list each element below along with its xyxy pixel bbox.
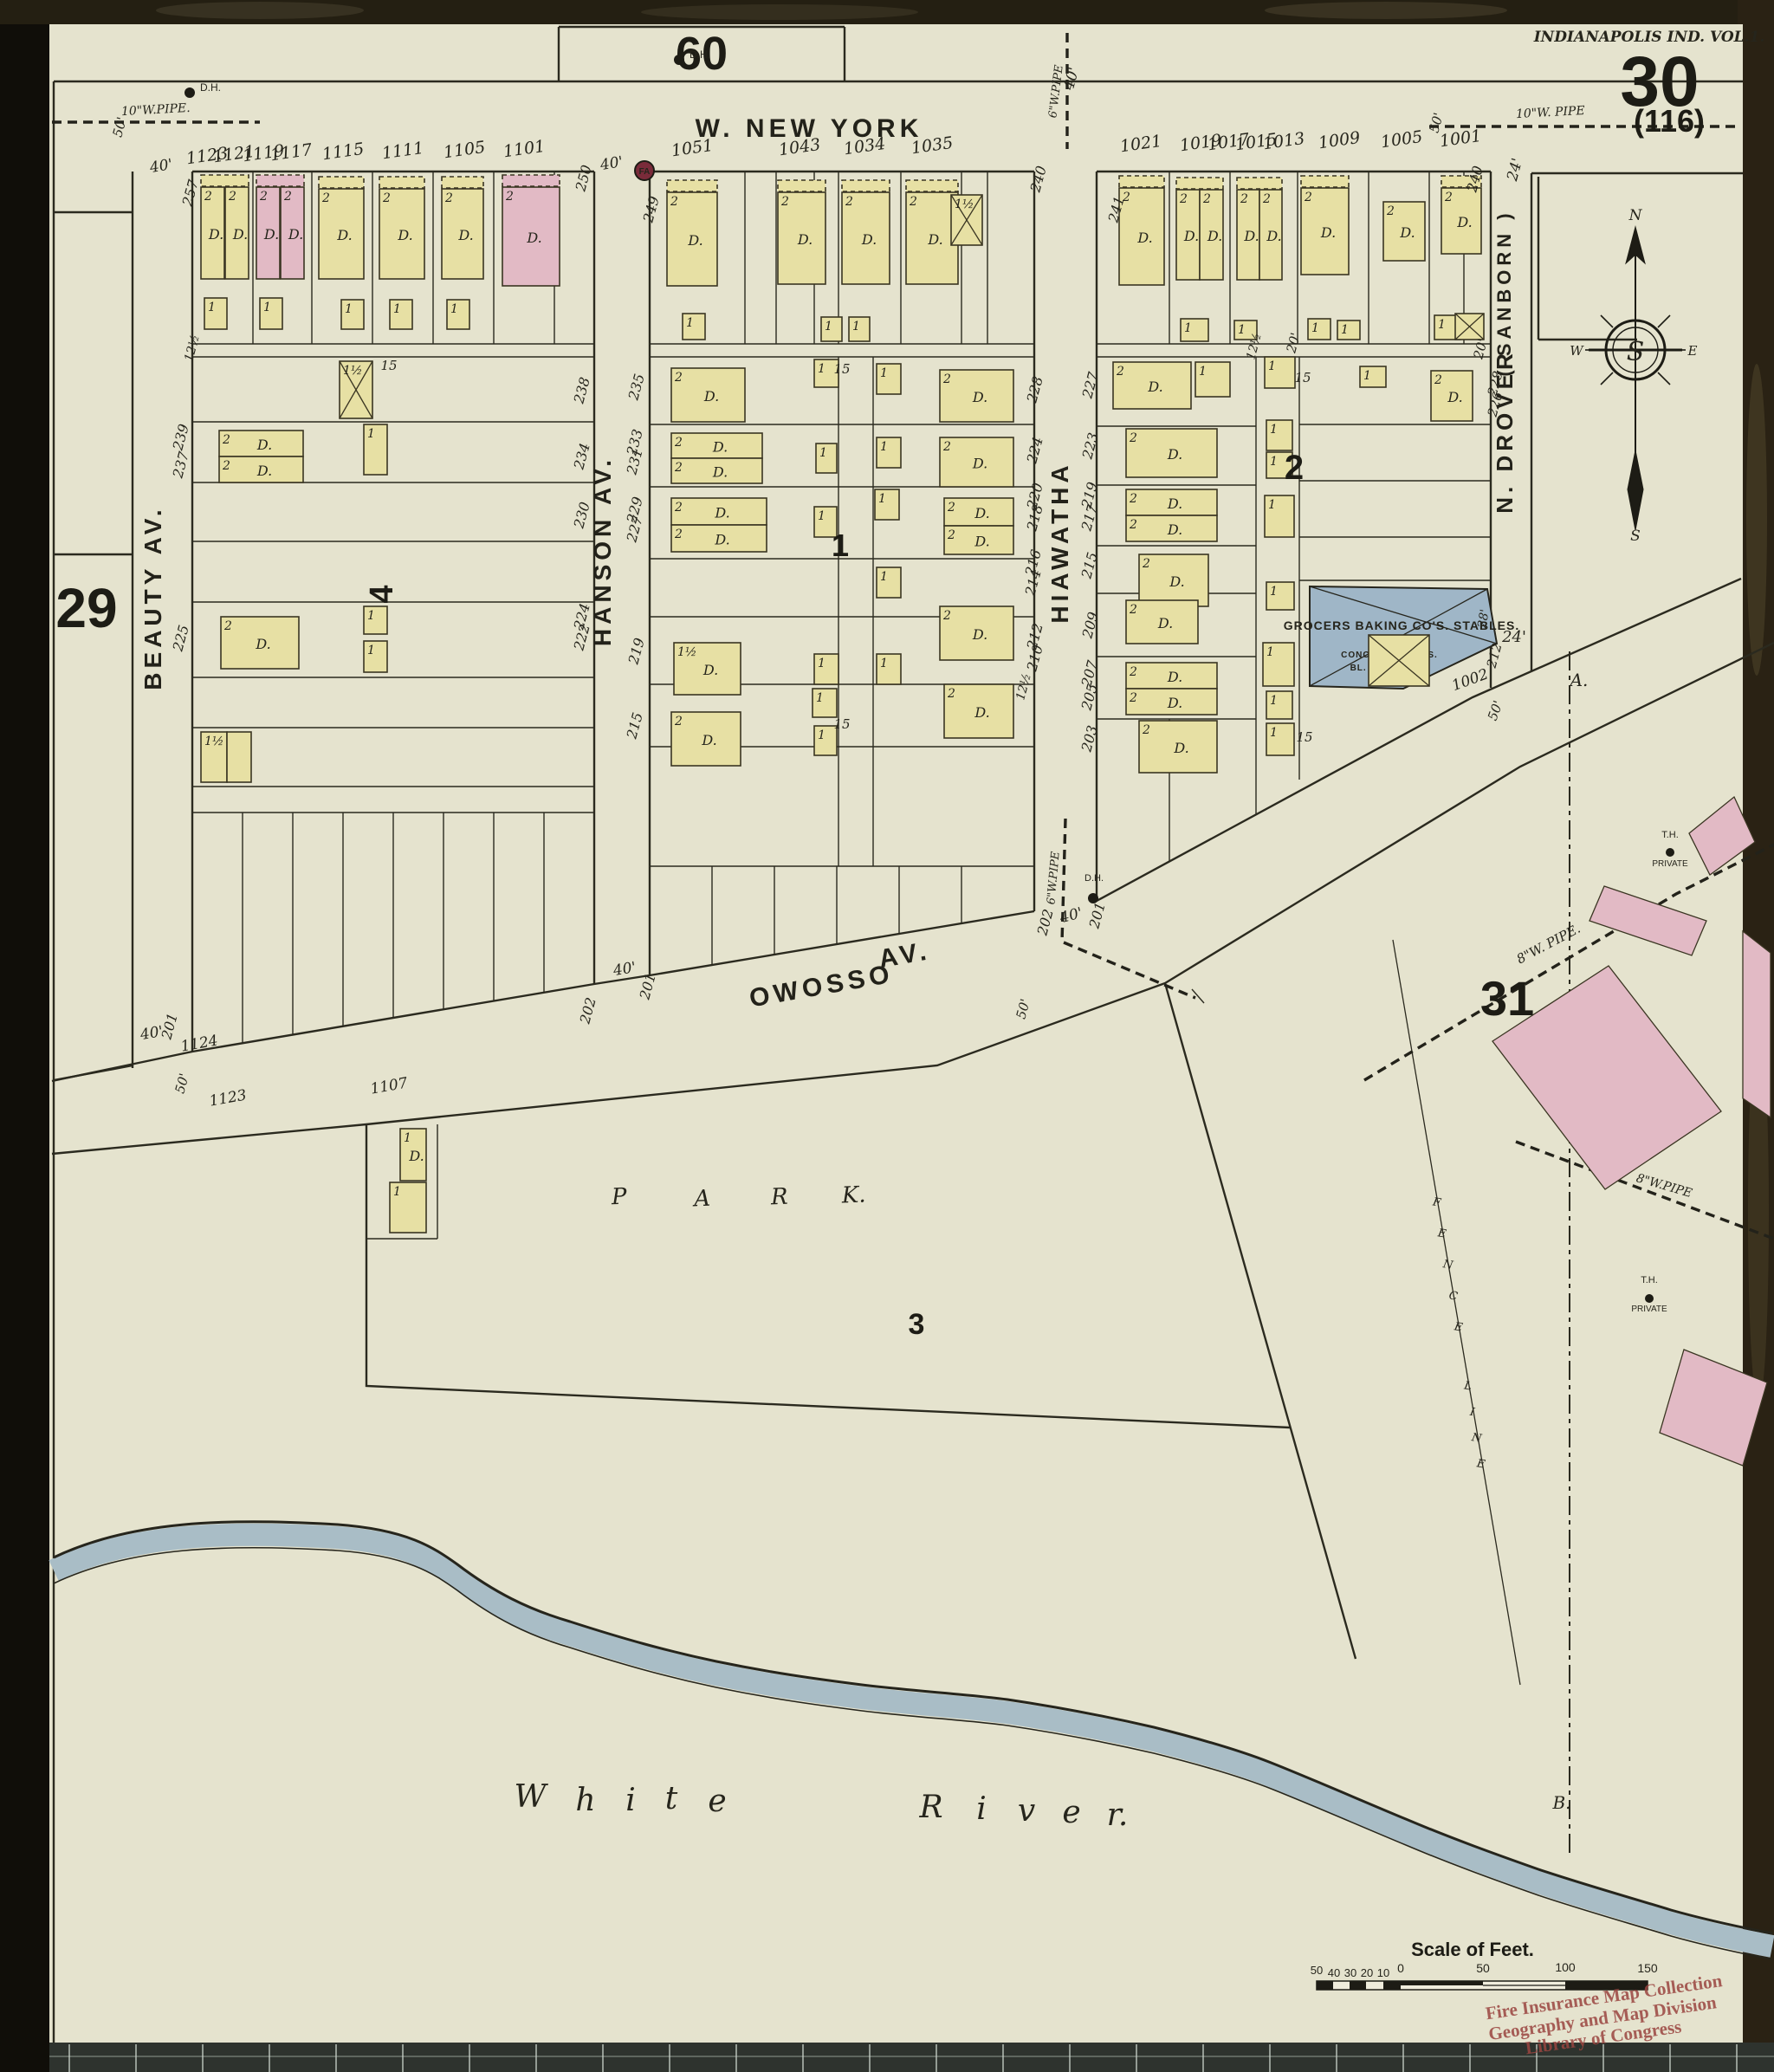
building-porch — [778, 180, 825, 191]
dwelling-label: D. — [701, 732, 716, 748]
building-stories: 2 — [1262, 192, 1271, 206]
map-label: T.H. — [1661, 830, 1679, 840]
dwelling-label: D. — [256, 437, 272, 453]
building-stories: 2 — [674, 436, 683, 450]
compass-n: N — [1628, 207, 1643, 224]
building-porch — [319, 177, 364, 188]
building-stories: 1 — [404, 1131, 411, 1145]
building-stories: 1 — [1270, 455, 1278, 469]
building-porch — [1301, 176, 1349, 187]
dwelling-label: D. — [263, 226, 279, 243]
fire-alarm-label: FA — [639, 167, 651, 177]
building — [227, 732, 251, 782]
building-porch — [1176, 178, 1223, 189]
building-stories: 1 — [208, 301, 216, 314]
map-canvas: GROCERS BAKING CO'S. STABLES. CONCRETE W… — [0, 0, 1774, 2072]
dwelling-label: D. — [714, 532, 729, 548]
dwelling-label: D. — [457, 227, 473, 243]
building-stories: 1 — [818, 509, 825, 523]
dwelling-label: D. — [255, 636, 270, 652]
building-stories: 2 — [382, 191, 391, 205]
building-stories: 2 — [283, 190, 292, 204]
dwelling-label: D. — [1167, 669, 1182, 685]
map-label: D.H. — [200, 81, 221, 94]
dwelling-label: D. — [526, 230, 541, 246]
building-stories: 2 — [505, 190, 514, 204]
dwelling-label: D. — [1147, 379, 1162, 395]
dwelling-label: D. — [1167, 695, 1182, 711]
dwelling-label: D. — [1399, 224, 1415, 241]
building-stories: 1 — [263, 301, 271, 314]
building-stories: 1 — [880, 657, 888, 670]
dwelling-label: D. — [397, 227, 412, 243]
scale-title: Scale of Feet. — [1411, 1939, 1534, 1960]
building-stories: 2 — [1179, 192, 1188, 206]
building-stories: 1 — [1363, 369, 1371, 383]
building-stories: 1 — [1238, 323, 1246, 337]
building-stories: 1 — [878, 492, 886, 506]
dwelling-label: D. — [703, 388, 719, 405]
dwelling-label: D. — [288, 226, 303, 243]
building-porch — [256, 175, 304, 186]
map-label: 100 — [1555, 1960, 1576, 1974]
building-stories: 1 — [393, 302, 401, 316]
map-label: 15 — [1294, 370, 1311, 385]
building-stories: 2 — [674, 528, 683, 541]
building-stories: 1 — [367, 644, 375, 657]
street-hanson-av: HANSON AV. — [589, 456, 616, 646]
building-stories: 1 — [818, 728, 825, 742]
building-porch — [1119, 176, 1164, 187]
dwelling-label: D. — [1173, 740, 1188, 756]
building-stories: 2 — [942, 609, 951, 623]
building-stories: 2 — [1129, 665, 1137, 679]
building-stories: 2 — [1129, 518, 1137, 532]
map-label: R — [918, 1790, 942, 1825]
building-stories: 2 — [1386, 204, 1395, 218]
building-stories: 2 — [204, 190, 212, 204]
map-label: A — [692, 1186, 711, 1213]
dwelling-label: D. — [974, 505, 989, 521]
dwelling-label: D. — [712, 464, 728, 481]
building-stories: 1 — [1311, 321, 1319, 335]
dwelling-label: D. — [232, 226, 248, 243]
building-stories: 2 — [674, 371, 683, 385]
building-porch — [502, 175, 560, 186]
building-stories: 1 — [1341, 323, 1349, 337]
adjacent-sheet-29: 29 — [55, 577, 117, 639]
map-label: 30 — [1344, 1966, 1356, 1979]
building-stories: 1 — [686, 316, 694, 330]
building-stories: 2 — [1142, 723, 1150, 737]
map-label: i — [625, 1783, 636, 1818]
dwelling-label: D. — [256, 463, 272, 479]
dwelling-label: D. — [1207, 228, 1222, 244]
building-stories: 1½ — [204, 735, 223, 748]
map-label: v — [1018, 1793, 1035, 1829]
building-stories: 1 — [1270, 423, 1278, 437]
dwelling-label: D. — [714, 505, 729, 521]
dwelling-label: D. — [1167, 446, 1182, 463]
map-label: e — [708, 1784, 726, 1819]
map-label: e — [1062, 1795, 1080, 1830]
building-stories: 2 — [845, 195, 853, 209]
dwelling-label: D. — [972, 389, 987, 405]
map-label: 50 — [1311, 1964, 1323, 1977]
map-label: P — [610, 1184, 627, 1211]
compass-s: S — [1630, 528, 1641, 545]
th-dot — [1645, 1294, 1654, 1303]
map-label: T.H. — [1641, 1275, 1658, 1285]
map-label: K. — [840, 1182, 866, 1209]
compass-monogram: S — [1627, 337, 1645, 367]
th-dot — [1666, 848, 1674, 857]
map-label: 20 — [1361, 1966, 1373, 1979]
dwelling-label: D. — [974, 534, 989, 550]
street-beauty-av: BEAUTY AV. — [139, 505, 166, 690]
map-label: i — [976, 1791, 987, 1827]
building-stories: 2 — [1129, 603, 1137, 617]
map-label: 15 — [833, 716, 850, 732]
building-stories: 1 — [818, 362, 825, 376]
building-stories: 2 — [444, 191, 453, 205]
dwelling-label: D. — [208, 226, 223, 243]
dwelling-label: D. — [1243, 228, 1259, 244]
building-stories: 2 — [942, 440, 951, 454]
map-label: 15 — [1296, 729, 1312, 745]
building-stories: 2 — [1240, 192, 1248, 206]
building-stories: 2 — [1129, 492, 1137, 506]
map-label: 15 — [833, 361, 850, 377]
building-stories: 1 — [1270, 694, 1278, 708]
dwelling-label: D. — [1136, 230, 1152, 246]
sanborn-map-sheet: GROCERS BAKING CO'S. STABLES. CONCRETE W… — [0, 0, 1774, 2072]
building-stories: 2 — [1434, 373, 1442, 387]
edge-texture — [1746, 364, 1767, 676]
building-stories: 1 — [367, 427, 375, 441]
building-stories: 2 — [670, 195, 678, 209]
map-label: D.H. — [1084, 873, 1104, 884]
map-label: A. — [1569, 670, 1589, 690]
building-stories: 1 — [880, 440, 888, 454]
left-edge — [0, 24, 49, 2072]
building-stories: 1 — [825, 320, 832, 333]
block-1: 1 — [832, 528, 849, 563]
dwelling-label: D. — [974, 704, 989, 721]
building-stories: 1 — [816, 691, 824, 705]
building-stories: 1 — [1268, 498, 1276, 512]
building-stories: 2 — [1129, 431, 1137, 445]
edge-texture — [156, 2, 364, 19]
building-stories: 2 — [942, 372, 951, 386]
building-stories: 1 — [852, 320, 860, 333]
edge-texture — [641, 4, 918, 20]
map-label: h — [575, 1783, 595, 1818]
street-sanborn: ( SANBORN ) — [1493, 209, 1515, 376]
map-label: D.H. — [690, 49, 710, 61]
dh-dot — [185, 87, 195, 98]
building-stories: 2 — [259, 190, 268, 204]
building-stories: 2 — [1142, 557, 1150, 571]
building-stories: 1 — [1270, 585, 1278, 599]
map-label: r. — [1107, 1797, 1129, 1833]
building-stories: 1 — [367, 609, 375, 623]
building-stories: 1½ — [677, 645, 696, 659]
building-stories: 1½ — [955, 197, 974, 211]
building-stories: 1 — [345, 302, 353, 316]
building-stories: 1½ — [343, 364, 362, 378]
building-stories: 1 — [1268, 359, 1276, 373]
building-stories: 2 — [674, 501, 683, 515]
building-stories: 1 — [1270, 726, 1278, 740]
map-label: 150 — [1637, 1961, 1658, 1975]
dwelling-label: D. — [1266, 228, 1281, 244]
map-label: 24' — [1501, 628, 1526, 646]
map-label: 15 — [380, 358, 397, 373]
building-stories: 2 — [780, 195, 789, 209]
building-stories: 1 — [1184, 321, 1192, 335]
block-2: 2 — [1285, 449, 1304, 487]
building-stories: 2 — [222, 459, 230, 473]
building-stories: 2 — [909, 195, 917, 209]
building-stories: 2 — [321, 191, 330, 205]
dwelling-label: D. — [1167, 521, 1182, 538]
building-porch — [1237, 178, 1282, 189]
building-porch — [842, 180, 890, 191]
building-porch — [201, 175, 249, 186]
dwelling-label: D. — [408, 1148, 424, 1164]
building-stories: 2 — [947, 501, 955, 515]
dwelling-label: D. — [1183, 228, 1199, 244]
ruler-band — [49, 2043, 1774, 2072]
building-stories: 1 — [450, 302, 458, 316]
dwelling-label: D. — [702, 662, 718, 678]
adjacent-sheet-31: 31 — [1480, 971, 1534, 1026]
edge-texture — [1265, 2, 1507, 19]
building-porch — [906, 180, 958, 191]
building-porch — [667, 180, 717, 191]
building-stories: 2 — [1202, 192, 1211, 206]
dwelling-label: D. — [861, 231, 877, 248]
dwelling-label: D. — [972, 456, 987, 472]
block-3: 3 — [909, 1308, 925, 1341]
dwelling-label: D. — [336, 227, 352, 243]
building-porch — [442, 177, 483, 188]
building-stories: 2 — [223, 619, 232, 633]
building-stories: 2 — [222, 433, 230, 447]
building-stories: 2 — [228, 190, 236, 204]
dwelling-label: D. — [972, 626, 987, 643]
map-label: W — [514, 1779, 548, 1815]
building-stories: 2 — [1444, 191, 1453, 204]
dwelling-label: D. — [1447, 389, 1462, 405]
building-stories: 2 — [947, 528, 955, 542]
map-label: 40 — [1328, 1966, 1340, 1979]
building-stories: 1 — [1266, 645, 1274, 659]
compass-w: W — [1570, 343, 1584, 359]
dwelling-label: D. — [1320, 224, 1336, 241]
building-stories: 1 — [393, 1185, 401, 1199]
map-label: 0 — [1397, 1961, 1404, 1975]
dwelling-label: D. — [712, 439, 728, 456]
map-label: 50 — [1476, 1961, 1490, 1975]
map-label: t — [665, 1781, 678, 1816]
dwelling-label: D. — [1169, 573, 1184, 590]
dwelling-label: D. — [797, 231, 813, 248]
dwelling-label: D. — [1456, 214, 1472, 230]
dwelling-label: D. — [687, 232, 702, 249]
map-label: B. — [1551, 1792, 1570, 1813]
compass-e: E — [1687, 343, 1698, 359]
building-stories: 1 — [880, 366, 888, 380]
map-label: PRIVATE — [1652, 859, 1688, 869]
building-stories: 2 — [947, 687, 955, 701]
building-stories: 2 — [1116, 365, 1124, 379]
building-porch — [379, 177, 424, 188]
block-4: 4 — [364, 585, 400, 603]
building-stories: 2 — [1129, 691, 1137, 705]
building-stories: 1 — [819, 446, 827, 460]
dwelling-label: D. — [1157, 615, 1173, 631]
building-stories: 1 — [818, 657, 825, 670]
map-label: 10 — [1377, 1966, 1389, 1979]
dwelling-label: D. — [927, 231, 942, 248]
map-label: R — [769, 1184, 788, 1211]
page-ref: (116) — [1634, 103, 1705, 139]
street-hiawatha: HIAWATHA — [1046, 461, 1073, 623]
building-stories: 1 — [1438, 318, 1446, 332]
map-label: PRIVATE — [1631, 1305, 1667, 1314]
building-stories: 2 — [1304, 191, 1312, 204]
building-stories: 2 — [674, 715, 683, 728]
building-stories: 1 — [880, 570, 888, 584]
building-stories: 2 — [674, 461, 683, 475]
building-stories: 1 — [1199, 365, 1207, 379]
dwelling-label: D. — [1167, 495, 1182, 512]
